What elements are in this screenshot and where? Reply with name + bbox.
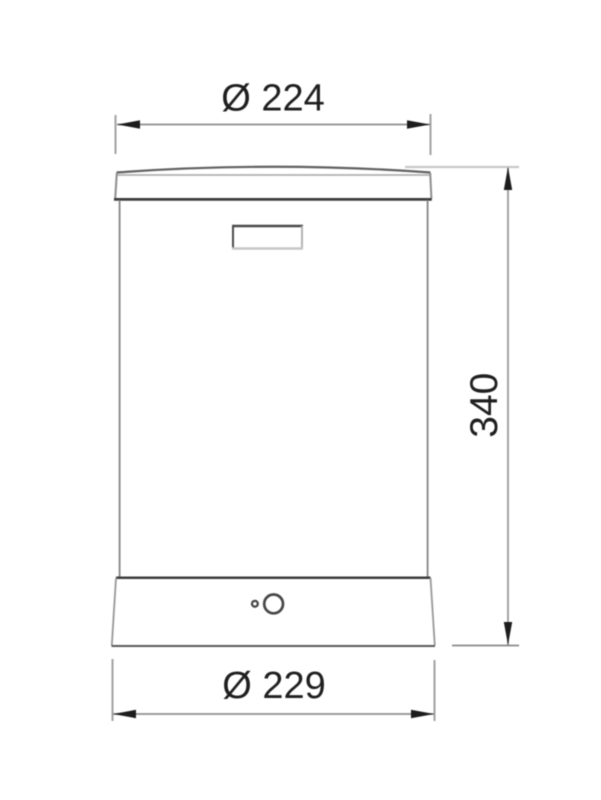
svg-text:340: 340 <box>463 373 506 438</box>
svg-text:Ø 224: Ø 224 <box>221 78 325 120</box>
svg-text:Ø 229: Ø 229 <box>222 665 326 707</box>
